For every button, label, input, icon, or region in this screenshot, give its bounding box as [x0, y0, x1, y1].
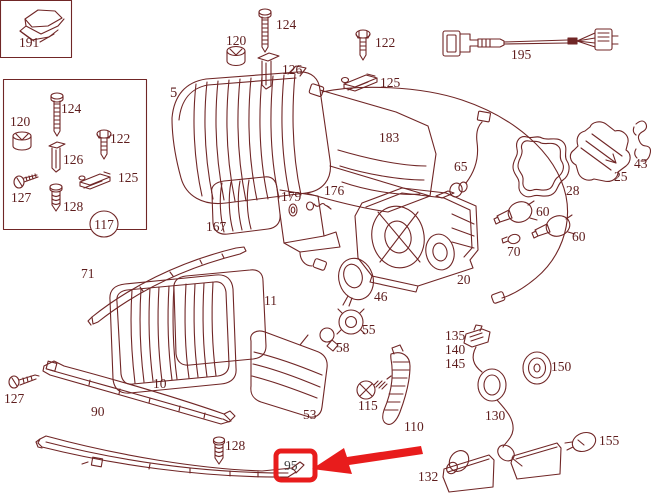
part-135-connector-drawing: [464, 325, 490, 372]
part-label-box-128: 128: [63, 200, 83, 214]
part-179-grommet-drawing: [289, 204, 297, 216]
part-60-bulb-a-drawing: [494, 198, 537, 225]
part-10-lens-drawing: [110, 275, 236, 393]
part-155-bulb-drawing: [565, 429, 598, 455]
part-label-95-highlighted[interactable]: 95: [284, 459, 298, 473]
part-label-126: 126: [282, 63, 302, 77]
part-label-122: 122: [375, 36, 395, 50]
part-label-20: 20: [457, 273, 471, 287]
part-label-176: 176: [324, 184, 344, 198]
part-128-screw-drawing: [214, 437, 225, 464]
part-53-lens-drawing: [251, 331, 327, 417]
part-label-183: 183: [379, 131, 399, 145]
part-label-128: 128: [225, 439, 245, 453]
part-46-cap-drawing: [333, 254, 378, 306]
part-label-28: 28: [566, 184, 580, 198]
part-label-25: 25: [614, 170, 628, 184]
part-label-46: 46: [374, 290, 388, 304]
part-label-117: 117: [90, 218, 118, 232]
part-label-135: 135: [445, 329, 465, 343]
part-127-screw-drawing: [9, 375, 39, 388]
part-label-167: 167: [206, 220, 226, 234]
part-label-10: 10: [153, 377, 167, 391]
part-115-screw-drawing: [357, 376, 391, 399]
part-label-115: 115: [358, 399, 378, 413]
part-label-55: 55: [362, 323, 376, 337]
part-label-150: 150: [551, 360, 571, 374]
part-label-191: 191: [19, 36, 39, 50]
part-label-box-124: 124: [61, 102, 81, 116]
part-label-58: 58: [336, 341, 350, 355]
part-label-box-122: 122: [110, 132, 130, 146]
part-label-124: 124: [276, 18, 296, 32]
part-label-140: 140: [445, 343, 465, 357]
part-label-110: 110: [404, 420, 424, 434]
part-label-71: 71: [81, 267, 95, 281]
part-label-179: 179: [281, 190, 301, 204]
part-label-53: 53: [303, 408, 317, 422]
part-65-socket-drawing: [436, 111, 491, 199]
part-label-11: 11: [264, 294, 277, 308]
diagram-line-art: [0, 0, 654, 494]
part-label-43: 43: [634, 157, 648, 171]
part-55-holder-drawing: [337, 309, 365, 334]
part-label-145: 145: [445, 357, 465, 371]
part-132-lamp-drawing: [443, 443, 561, 492]
loose-hardware-drawing: [227, 9, 377, 91]
part-label-60b: 60: [572, 230, 586, 244]
parts-diagram: 191 124 120 122 126 125 127 128 117 5 12…: [0, 0, 654, 494]
part-28-gasket-drawing: [513, 137, 569, 197]
part-label-60a: 60: [536, 205, 550, 219]
part-label-box-126: 126: [63, 153, 83, 167]
part-label-box-125: 125: [118, 171, 138, 185]
part-label-90: 90: [91, 405, 105, 419]
part-label-120: 120: [226, 34, 246, 48]
part-label-155: 155: [599, 434, 619, 448]
part-label-125: 125: [380, 76, 400, 90]
part-95-strip-drawing: [36, 436, 304, 477]
part-label-132: 132: [418, 470, 438, 484]
part-label-65: 65: [454, 160, 468, 174]
part-label-box-120: 120: [10, 115, 30, 129]
part-label-195: 195: [511, 48, 531, 62]
part-183-cable-drawing: [309, 83, 568, 303]
part-label-70: 70: [507, 245, 521, 259]
part-label-130: 130: [485, 409, 505, 423]
part-label-box-127: 127: [11, 191, 31, 205]
part-label-127: 127: [4, 392, 24, 406]
highlight-arrow: [312, 446, 423, 474]
part-label-5: 5: [170, 86, 177, 101]
part-150-grommet-drawing: [523, 352, 551, 384]
